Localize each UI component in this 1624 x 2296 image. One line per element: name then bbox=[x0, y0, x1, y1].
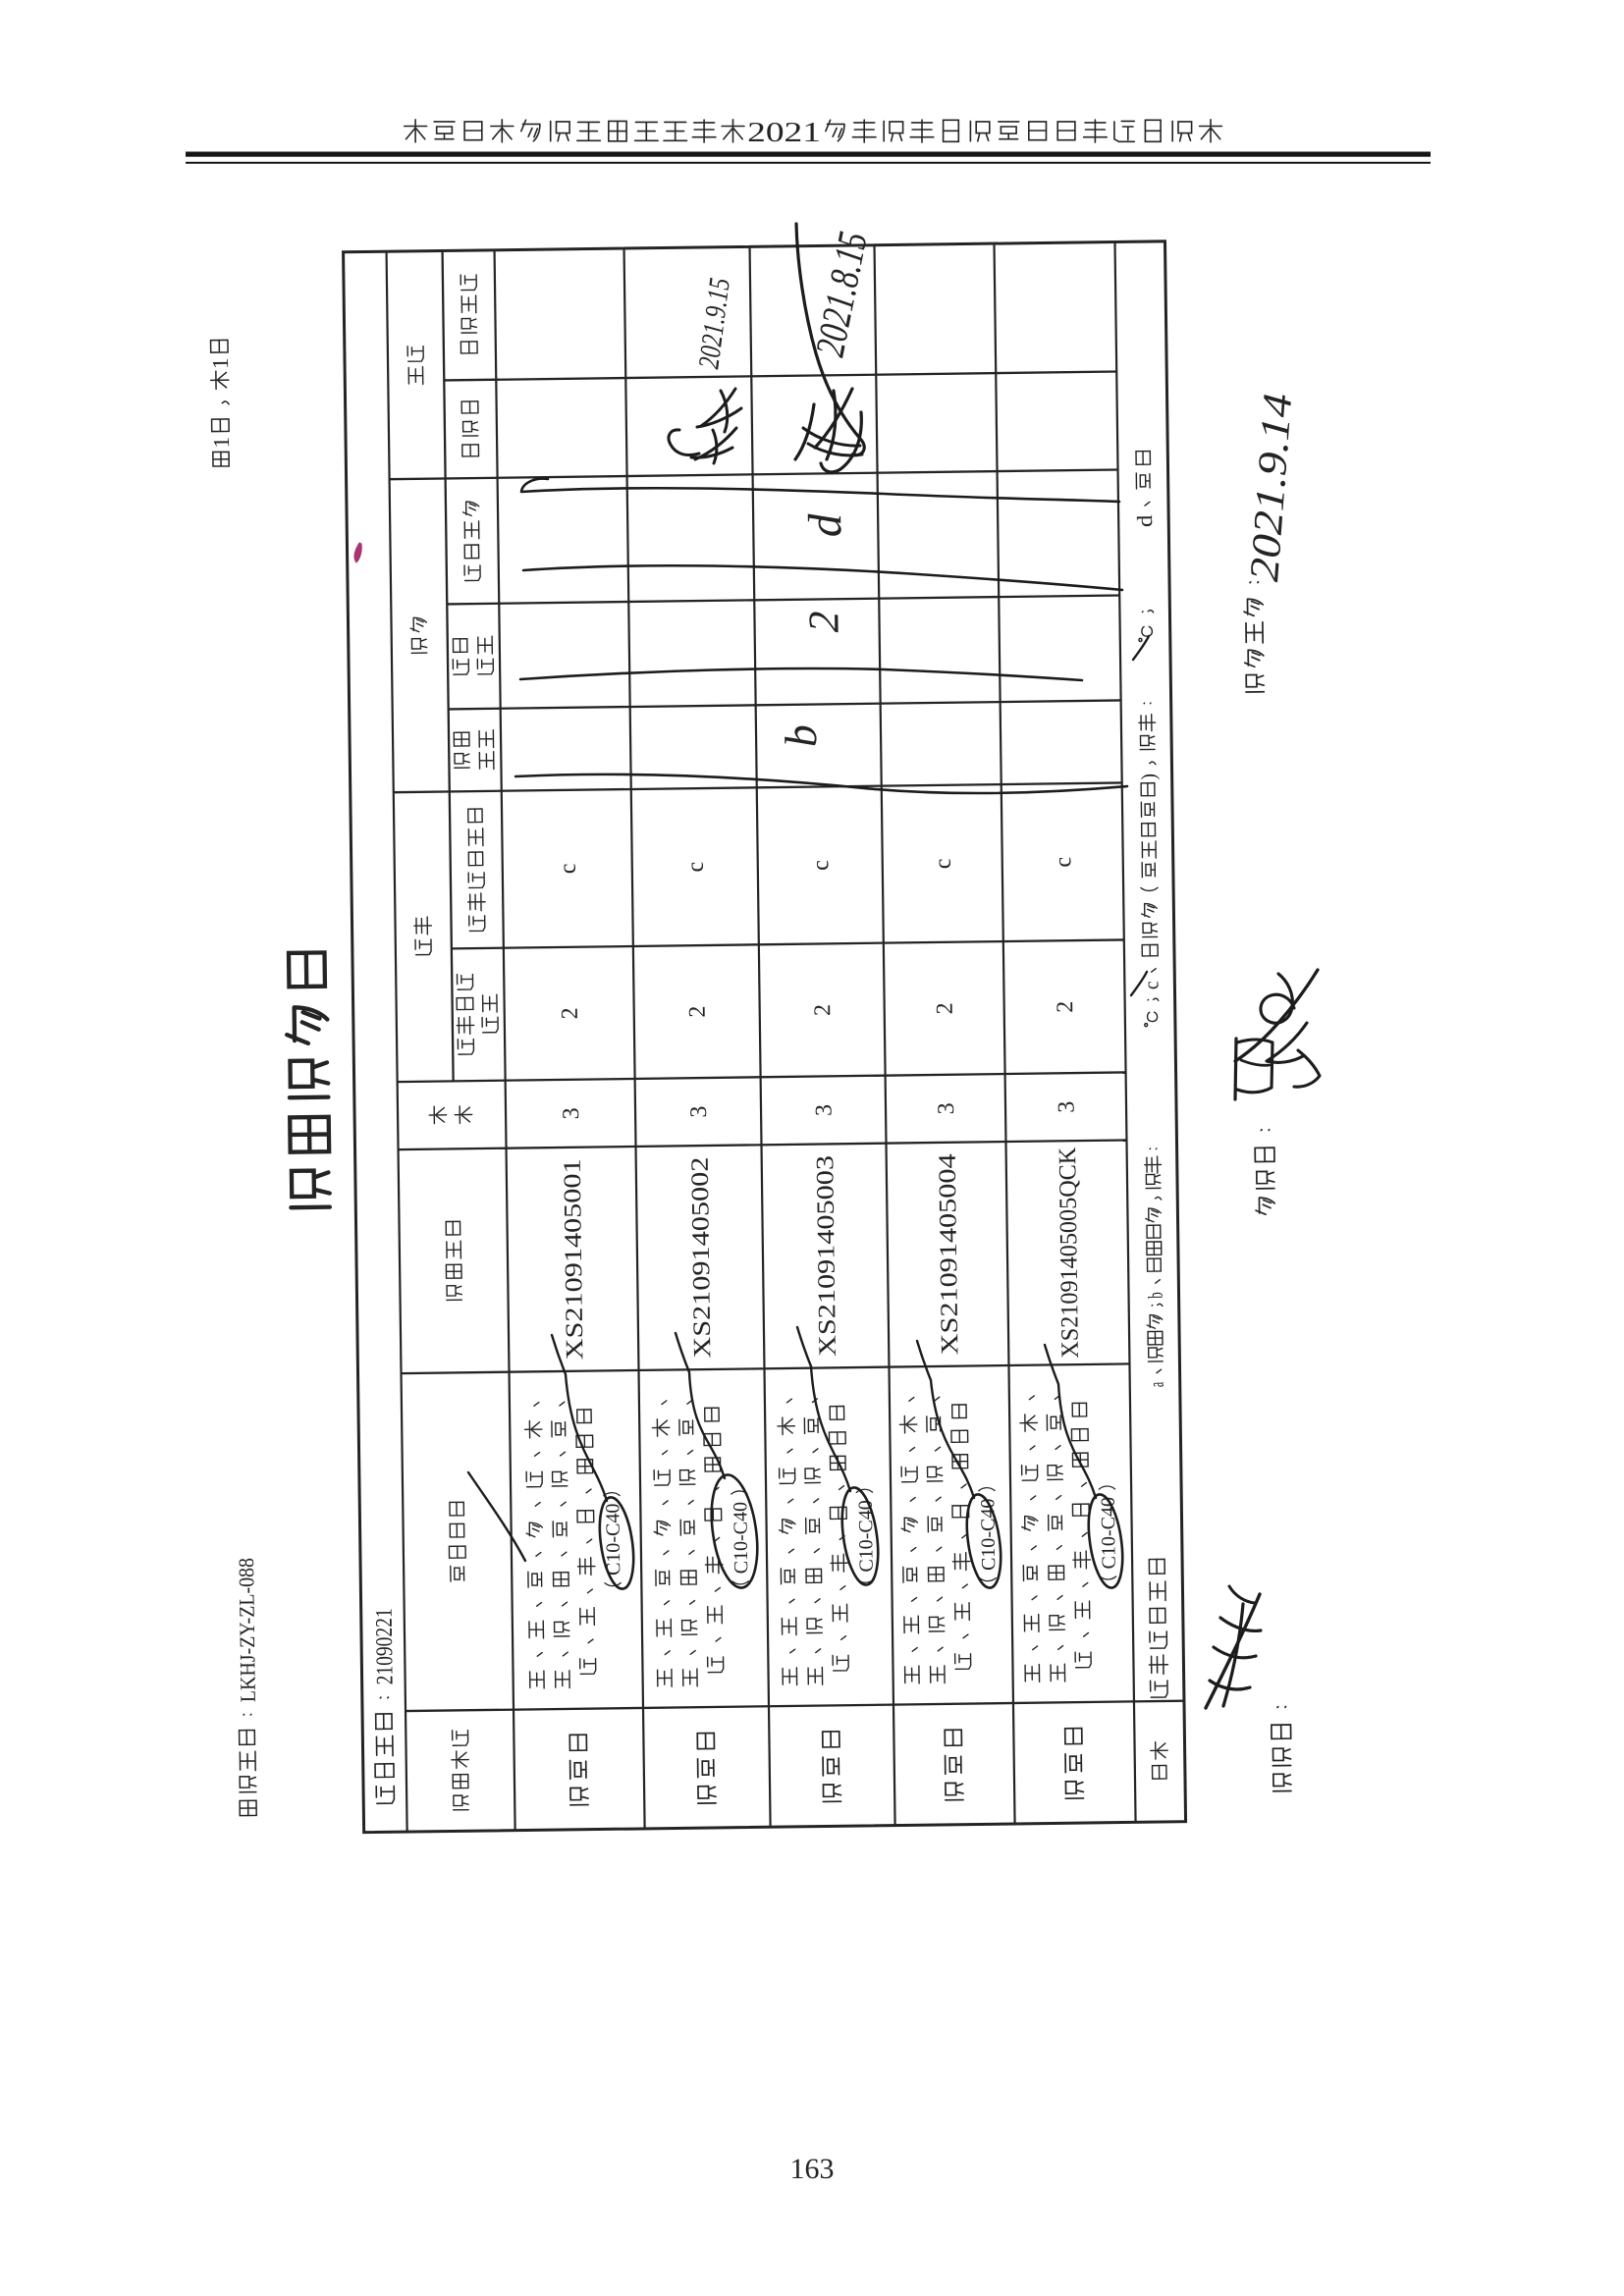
svg-text:c: c bbox=[808, 860, 834, 871]
svg-text:2: 2 bbox=[558, 1007, 583, 1019]
svg-text:2: 2 bbox=[685, 1005, 711, 1017]
svg-text:XS21091405003: XS21091405003 bbox=[812, 1155, 841, 1357]
svg-text:c: c bbox=[931, 858, 956, 869]
svg-text:XS21091405002: XS21091405002 bbox=[687, 1156, 717, 1358]
svg-text:3: 3 bbox=[686, 1105, 712, 1117]
svg-text:3: 3 bbox=[811, 1104, 837, 1116]
svg-text:2021: 2021 bbox=[747, 117, 821, 148]
svg-text:3: 3 bbox=[934, 1102, 959, 1114]
svg-text:C10-C40: C10-C40 bbox=[855, 1500, 878, 1573]
svg-text:2: 2 bbox=[933, 1002, 958, 1014]
svg-text:2: 2 bbox=[799, 611, 847, 633]
svg-text:d: d bbox=[799, 512, 851, 538]
svg-text:3: 3 bbox=[1054, 1101, 1079, 1113]
svg-text:1: 1 bbox=[209, 437, 234, 449]
svg-text:XS21091405001: XS21091405001 bbox=[560, 1158, 589, 1360]
svg-text:XS21091405004: XS21091405004 bbox=[935, 1153, 964, 1356]
svg-text:1: 1 bbox=[208, 357, 233, 369]
svg-text:c: c bbox=[683, 862, 709, 873]
svg-text:c: c bbox=[556, 863, 581, 874]
svg-text:163: 163 bbox=[790, 2153, 835, 2185]
svg-text:c: c bbox=[1139, 981, 1163, 989]
svg-text:LKHJ-ZY-ZL-088: LKHJ-ZY-ZL-088 bbox=[234, 1558, 260, 1703]
svg-text:XS21091405005QCK: XS21091405005QCK bbox=[1055, 1148, 1084, 1359]
svg-text:C10-C40: C10-C40 bbox=[977, 1498, 1000, 1571]
svg-text:c: c bbox=[1051, 857, 1076, 868]
svg-text:3: 3 bbox=[559, 1107, 584, 1119]
svg-text:21090221: 21090221 bbox=[372, 1608, 399, 1684]
svg-text:C10-C40: C10-C40 bbox=[730, 1502, 752, 1575]
svg-text:C10-C40: C10-C40 bbox=[1098, 1497, 1120, 1570]
svg-text:b: b bbox=[1144, 1292, 1167, 1299]
svg-text:): ) bbox=[1137, 774, 1161, 780]
svg-text:a: a bbox=[1145, 1381, 1168, 1387]
svg-text:2: 2 bbox=[1053, 1001, 1078, 1013]
svg-text:b: b bbox=[776, 724, 826, 748]
svg-text:d: d bbox=[1132, 514, 1157, 527]
svg-text:2: 2 bbox=[810, 1004, 836, 1016]
